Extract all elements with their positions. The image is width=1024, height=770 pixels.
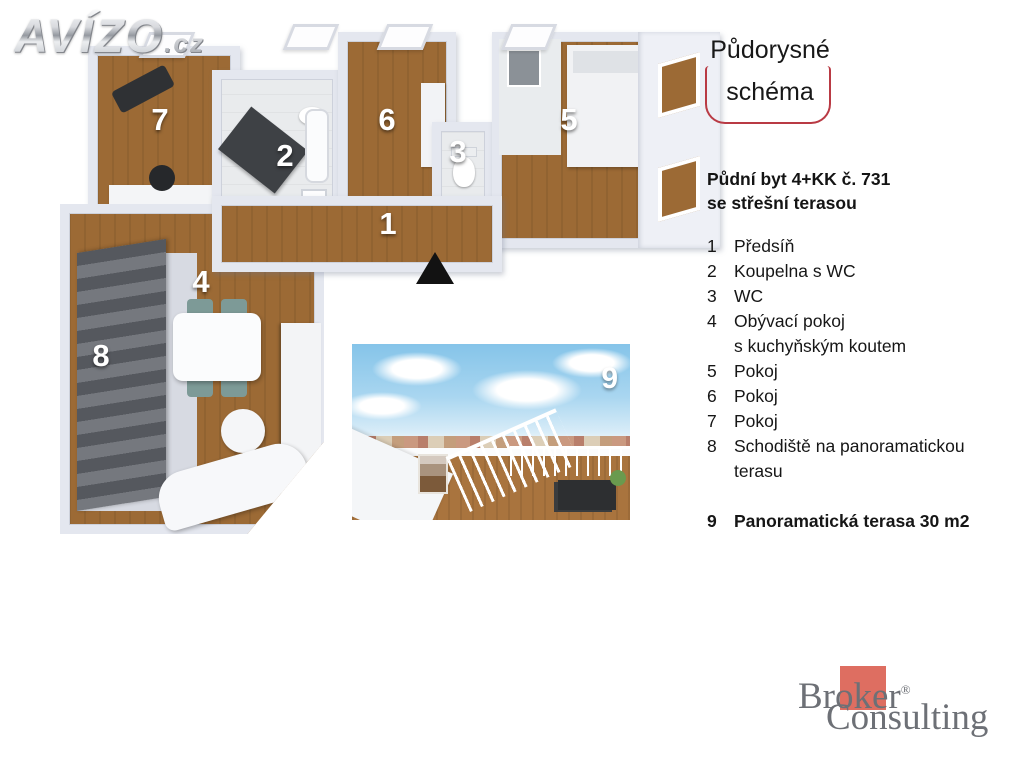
legend-num: 4 [707,309,734,334]
listing-heading-line1: Půdní byt 4+KK č. 731 [707,167,1007,191]
brand-line2: Consulting [826,700,988,736]
legend-num: 1 [707,234,734,259]
room-label-7: 7 [145,102,175,138]
legend-num: 5 [707,359,734,384]
terrace-furniture [558,480,616,510]
cloud [552,348,630,378]
legend-num: 8 [707,434,734,459]
broker-consulting-logo: Broker® Consulting [792,662,1018,762]
legend-item-6: 6 Pokoj [707,384,1017,409]
legend-label: Předsíň [734,234,1017,259]
shower [507,49,541,87]
legend-item-1: 1 Předsíň [707,234,1017,259]
legend-num: 6 [707,384,734,409]
bed-pillow [573,51,645,73]
legend-label: Koupelna s WC [734,259,1017,284]
plant [610,470,626,486]
roof-window-icon [658,52,700,118]
room-legend: 1 Předsíň 2 Koupelna s WC 3 WC 4 Obývací… [707,234,1017,534]
entrance-arrow-icon [416,252,454,284]
legend-label: Schodiště na panoramatickou [734,434,1017,459]
legend-num: 2 [707,259,734,284]
room-label-2: 2 [270,138,300,174]
side-table [221,409,265,453]
schema-title-line1: Půdorysné [700,36,840,65]
office-chair [149,165,175,191]
legend-item-3: 3 WC [707,284,1017,309]
legend-num: 9 [707,509,734,534]
bookshelf [418,454,448,494]
legend-label: s kuchyňským koutem [734,334,1017,359]
legend-label: Pokoj [734,384,1017,409]
legend-item-2: 2 Koupelna s WC [707,259,1017,284]
avizo-logo-text: AVÍZO [14,9,164,62]
cloud [352,392,422,420]
legend-label: Obývací pokoj [734,309,1017,334]
legend-item-9: 9 Panoramatická terasa 30 m2 [707,509,1017,534]
schema-title-line2: schéma [700,78,840,107]
legend-label: Pokoj [734,359,1017,384]
listing-schematic-page: AVÍZO.cz [0,0,1024,770]
room-label-3: 3 [443,134,473,170]
legend-label: Panoramatická terasa 30 m2 [734,509,1017,534]
room-label-4: 4 [186,264,216,300]
room-label-5: 5 [554,102,584,138]
bathtub [305,109,329,183]
legend-num: 7 [707,409,734,434]
listing-heading-line2: se střešní terasou [707,191,1007,215]
schema-title: Půdorysné schéma [700,36,840,128]
legend-item-8: 8 Schodiště na panoramatickou [707,434,1017,459]
room-label-1: 1 [373,206,403,242]
registered-mark-icon: ® [901,682,911,697]
legend-label: terasu [734,459,1017,484]
room-label-9: 9 [601,362,618,396]
stair-steps [77,239,166,511]
room-5 [492,32,720,248]
brand-word-consulting: Consulting [826,697,988,738]
room-label-8: 8 [86,338,116,374]
listing-heading: Půdní byt 4+KK č. 731 se střešní terasou [707,167,1007,215]
room-label-6: 6 [372,102,402,138]
legend-label: WC [734,284,1017,309]
cloud [372,352,462,386]
legend-item-4: 4 Obývací pokoj [707,309,1017,334]
terrace-photo: 9 [352,344,630,520]
skylight-icon [283,24,340,50]
legend-label: Pokoj [734,409,1017,434]
room-1-hall [212,196,502,272]
avizo-logo: AVÍZO.cz [14,8,205,63]
legend-item-7: 7 Pokoj [707,409,1017,434]
dining-table [173,313,261,381]
legend-item-4-line2: s kuchyňským koutem [707,334,1017,359]
legend-item-8-line2: terasu [707,459,1017,484]
roof-window-icon [658,156,700,222]
legend-num: 3 [707,284,734,309]
avizo-logo-tld: .cz [164,28,205,58]
legend-item-5: 5 Pokoj [707,359,1017,384]
